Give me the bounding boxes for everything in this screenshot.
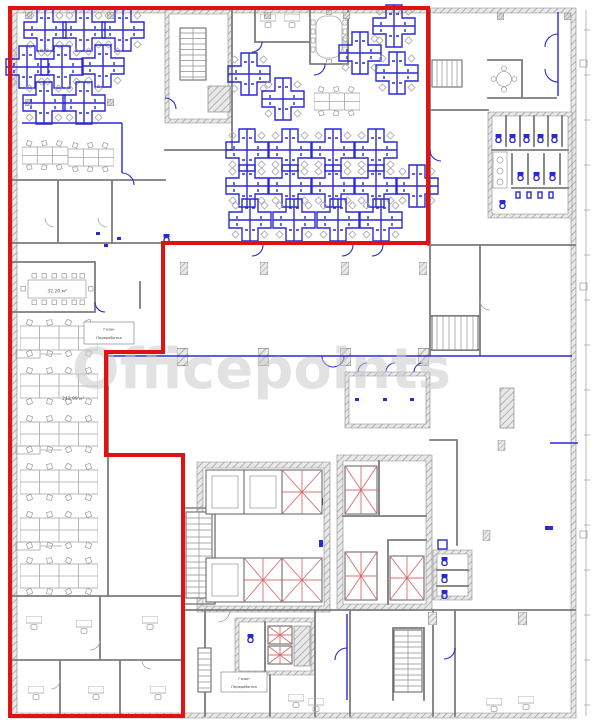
watermark-text: Officepoints: [72, 337, 451, 402]
corridor-columns: [25, 12, 571, 625]
floor-plan-page: 32,20 м² 243,99 м² Газон Переработка Газ…: [0, 0, 600, 725]
elevator-core-left: [206, 470, 322, 602]
floor-plan: 32,20 м² 243,99 м² Газон Переработка Газ…: [0, 0, 600, 725]
wc-block-bottom-walls: [433, 550, 472, 600]
duct-shaft: [500, 388, 514, 428]
svg-text:Газон: Газон: [238, 677, 250, 681]
dimension-strip: [580, 10, 590, 716]
elevator-core-right: [345, 466, 424, 600]
bench-desks-top-left: [22, 86, 360, 172]
kitchen-table: [491, 66, 517, 92]
room-label-box-bottom: Газон Переработка: [221, 672, 267, 692]
service-lifts-bottom: [268, 626, 310, 666]
stair-bottom: [394, 630, 422, 692]
svg-text:Переработка: Переработка: [231, 685, 256, 689]
stair-top-right: [432, 60, 462, 87]
svg-text:Газон: Газон: [103, 328, 115, 332]
stair-top-core: [180, 28, 230, 112]
conference-table: [311, 11, 347, 64]
area-label-meeting-room: 32,20 м²: [47, 289, 67, 295]
stair-bottom-left: [198, 648, 211, 692]
